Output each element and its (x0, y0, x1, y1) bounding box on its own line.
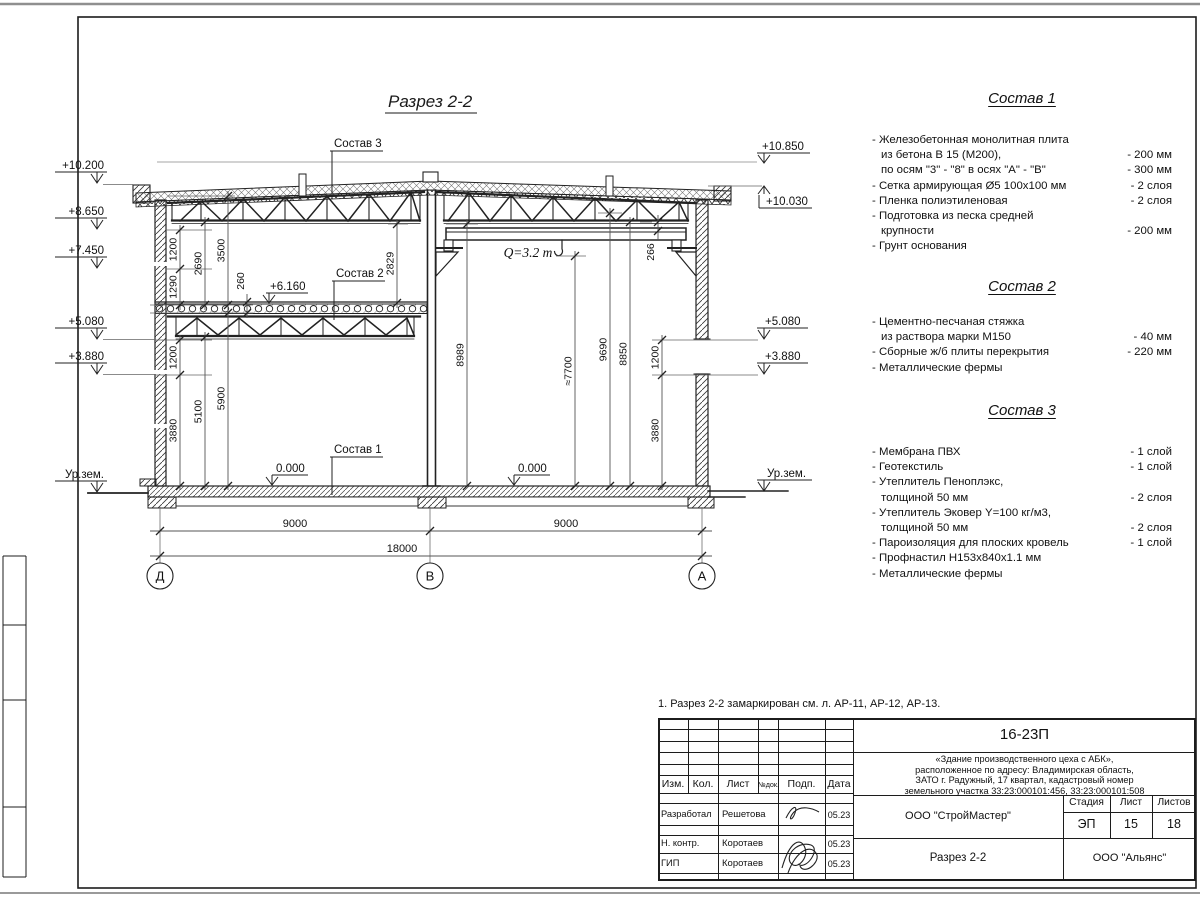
svg-text:0.000: 0.000 (276, 463, 305, 475)
svg-text:Ур.зем.: Ур.зем. (65, 469, 104, 481)
project-code: 16-23П (853, 726, 1196, 743)
spec2-title: Состав 2 (872, 278, 1172, 295)
spec-item-text: - Геотекстиль (872, 460, 943, 475)
spec-item-text: по осям "3" - "8" в осях "А" - "В" (872, 163, 1046, 178)
roof-vent-left (299, 174, 306, 196)
project-desc-line: «Здание производственного цеха с АБК», (855, 754, 1194, 764)
sheet-section-name: Разрез 2-2 (853, 852, 1063, 864)
spec-row: - Железобетонная монолитная плита (872, 133, 1172, 148)
ground-level-mark: Ур.зем. (55, 469, 107, 492)
spec-row: толщиной 50 мм- 2 слоя (872, 521, 1172, 536)
contractor-org: ООО "СтройМастер" (853, 810, 1063, 822)
svg-text:Состав 2: Состав 2 (336, 268, 384, 280)
spec-item-text: - Металлические фермы (872, 567, 1002, 582)
spec-item-text: - Цементно-песчаная стяжка (872, 315, 1024, 330)
roof-edge-left (133, 185, 150, 203)
spec-row: - Утеплитель Эковер Y=100 кг/м3, (872, 506, 1172, 521)
spec-item-text: - Утеплитель Эковер Y=100 кг/м3, (872, 506, 1051, 521)
roof-vent-right (606, 176, 613, 196)
spec-row: из бетона В 15 (М200),- 200 мм (872, 148, 1172, 163)
floor-structure (88, 479, 788, 508)
dim-18000: 18000 (387, 543, 418, 555)
project-desc-line: расположенное по адресу: Владимирская об… (855, 765, 1194, 775)
dim-3880-left: 3880 (168, 419, 180, 443)
dim-2829: 2829 (385, 252, 397, 276)
col-podp: Подп. (778, 778, 825, 790)
elevation-mark: +5.080 (757, 316, 808, 339)
spec-item-text: толщиной 50 мм (872, 491, 968, 506)
ground-line-right (708, 491, 788, 497)
spec-row: - Пароизоляция для плоских кровель- 1 сл… (872, 536, 1172, 551)
stage-header: Стадия (1063, 797, 1110, 808)
sheet-note: 1. Разрез 2-2 замаркирован см. л. АР-11,… (658, 698, 940, 710)
row-role: Н. контр. (661, 838, 717, 848)
spec-row: - Утеплитель Пеноплэкс, (872, 475, 1172, 490)
spec-item-value: - 2 слоя (1131, 491, 1172, 506)
spec-item-value: - 200 мм (1127, 224, 1172, 239)
elevation-mark: +5.080 (55, 316, 107, 339)
dim-2690: 2690 (193, 252, 205, 276)
spec-item-text: - Пароизоляция для плоских кровель (872, 536, 1069, 551)
spec-block-2: Состав 2 - Цементно-песчаная стяжка из р… (872, 278, 1172, 376)
spec-row: - Подготовка из песка средней (872, 209, 1172, 224)
spec-item-value: - 1 слой (1130, 536, 1172, 551)
dim-1290: 1290 (168, 275, 180, 299)
svg-text:+10.030: +10.030 (766, 196, 808, 208)
spec-row: - Металлические фермы (872, 567, 1172, 582)
crane-beam (436, 228, 696, 276)
spec-item-text: - Утеплитель Пеноплэкс, (872, 475, 1003, 490)
ground-level-mark: Ур.зем. (757, 468, 812, 491)
dim-5100: 5100 (193, 400, 205, 424)
spec-row: - Пленка полиэтиленовая- 2 слоя (872, 194, 1172, 209)
spec-item-text: - Пленка полиэтиленовая (872, 194, 1008, 209)
spec-item-text: - Грунт основания (872, 239, 967, 254)
spec-row: - Грунт основания (872, 239, 1172, 254)
dim-266: 266 (645, 243, 657, 261)
spec-item-text: - Сетка армирующая Ø5 100х100 мм (872, 179, 1066, 194)
row-name: Решетова (722, 809, 777, 820)
title-block: Изм. Кол. Лист №док. Подп. Дата Разработ… (658, 718, 1196, 881)
elevation-marks-right: +10.850 +10.030 +5.080 +3.880 Ур.зем. (757, 141, 812, 491)
axis-bubbles: Д В А (147, 563, 715, 589)
dim-8850: 8850 (618, 342, 630, 366)
spec-item-value: - 1 слой (1130, 445, 1172, 460)
level-zero-left: 0.000 (266, 463, 308, 485)
svg-text:+8.650: +8.650 (69, 206, 105, 218)
spec-row: - Сборные ж/б плиты перекрытия- 220 мм (872, 345, 1172, 360)
row-role: ГИП (661, 858, 717, 868)
svg-text:+6.160: +6.160 (270, 281, 306, 293)
elevation-mark: +3.880 (757, 351, 808, 374)
dim-3500: 3500 (216, 239, 228, 263)
svg-text:+7.450: +7.450 (69, 245, 105, 257)
spec-row: - Металлические фермы (872, 361, 1172, 376)
column-middle (423, 190, 440, 486)
spec-item-value: - 40 мм (1134, 330, 1172, 345)
spec-row: по осям "3" - "8" в осях "А" - "В"- 300 … (872, 163, 1172, 178)
stage-value: ЭП (1063, 817, 1110, 831)
spec-row: - Геотекстиль- 1 слой (872, 460, 1172, 475)
elevation-marks-left: +10.200 +8.650 +7.450 +5.080 +3.880 Ур.з… (55, 160, 107, 492)
spec-block-1: Состав 1 - Железобетонная монолитная пли… (872, 90, 1172, 255)
spec-item-text: из раствора марки М150 (872, 330, 1011, 345)
level-zero-right: 0.000 (508, 463, 550, 485)
drawing-sheet: 1200 1290 1200 3880 2690 5100 3500 5900 … (0, 0, 1200, 900)
col-ndok: №док. (758, 780, 778, 789)
svg-text:0.000: 0.000 (518, 463, 547, 475)
spec-item-value: - 2 слоя (1131, 194, 1172, 209)
elevation-mark: +3.880 (55, 351, 107, 374)
dim-260: 260 (235, 272, 247, 290)
spec-item-value: - 300 мм (1127, 163, 1172, 178)
crane-capacity-label: Q=3.2 т (504, 245, 553, 260)
spec-item-text: крупности (872, 224, 934, 239)
spec-item-value: - 2 слоя (1131, 179, 1172, 194)
client-org: ООО "Альянс" (1063, 852, 1196, 864)
svg-text:+3.880: +3.880 (765, 351, 801, 363)
wall-right-lower (696, 374, 708, 486)
col-list: Лист (718, 778, 758, 790)
spec1-title: Состав 1 (872, 90, 1172, 107)
roof-ridge-cap (423, 172, 438, 182)
level-6160: +6.160 (263, 281, 308, 303)
row-name: Коротаев (722, 838, 777, 849)
svg-text:+10.200: +10.200 (62, 160, 104, 172)
spec-row: - Сетка армирующая Ø5 100х100 мм- 2 слоя (872, 179, 1172, 194)
wall-left (155, 200, 166, 486)
row-date: 05.23 (825, 810, 853, 820)
wall-right-upper (696, 200, 708, 339)
crane-hook-icon (555, 240, 563, 256)
col-izm: Изм. (658, 778, 688, 790)
wall-right-window-lines (694, 339, 710, 374)
spec-item-text: из бетона В 15 (М200), (872, 148, 1001, 163)
svg-text:+3.880: +3.880 (69, 351, 105, 363)
row-role: Разработал (661, 809, 717, 819)
spec-row: толщиной 50 мм- 2 слоя (872, 491, 1172, 506)
elevation-mark: +8.650 (55, 206, 107, 229)
spec-row: из раствора марки М150- 40 мм (872, 330, 1172, 345)
axis-label-a: А (698, 569, 707, 584)
dim-9000-left: 9000 (283, 518, 307, 530)
project-desc-line: ЗАТО г. Радужный, 17 квартал, кадастровы… (855, 775, 1194, 785)
dimensions: 1200 1290 1200 3880 2690 5100 3500 5900 … (103, 162, 762, 589)
sheet-value: 15 (1110, 817, 1152, 831)
dim-3880-right: 3880 (650, 419, 662, 443)
drawing-title: Разрез 2-2 (388, 92, 472, 112)
elevation-mark: +10.030 (758, 186, 812, 208)
dim-7700: ≈7700 (563, 356, 575, 385)
sheets-value: 18 (1152, 817, 1196, 831)
spec-item-text: - Подготовка из песка средней (872, 209, 1034, 224)
svg-text:+5.080: +5.080 (765, 316, 801, 328)
svg-text:Состав 3: Состав 3 (334, 138, 382, 150)
dim-5900: 5900 (216, 387, 228, 411)
spec-item-value: - 220 мм (1127, 345, 1172, 360)
col-data: Дата (825, 778, 853, 790)
roof-edge-right (714, 186, 731, 201)
spec-item-text: - Железобетонная монолитная плита (872, 133, 1069, 148)
spec3-title: Состав 3 (872, 402, 1172, 419)
project-desc-line: земельного участка 33:23:000101:456, 33:… (855, 786, 1194, 796)
dim-9000-right: 9000 (554, 518, 578, 530)
svg-text:+5.080: +5.080 (69, 316, 105, 328)
elevation-mark: +7.450 (55, 245, 107, 268)
axis-label-d: Д (156, 569, 165, 584)
row-name: Коротаев (722, 858, 777, 869)
spec-item-value: - 2 слоя (1131, 521, 1172, 536)
svg-text:Состав 1: Состав 1 (334, 444, 382, 456)
dim-1200-mid: 1200 (168, 346, 180, 370)
row-date: 05.23 (825, 859, 853, 869)
spec-item-text: - Профнастил Н153х840х1.1 мм (872, 551, 1041, 566)
col-kol: Кол. (688, 778, 718, 790)
spec-item-text: толщиной 50 мм (872, 521, 968, 536)
spec-item-value: - 200 мм (1127, 148, 1172, 163)
spec-item-text: - Металлические фермы (872, 361, 1002, 376)
svg-text:+10.850: +10.850 (762, 141, 804, 153)
spec-row: - Цементно-песчаная стяжка (872, 315, 1172, 330)
spec-row: - Профнастил Н153х840х1.1 мм (872, 551, 1172, 566)
spec-item-text: - Сборные ж/б плиты перекрытия (872, 345, 1049, 360)
row-date: 05.23 (825, 839, 853, 849)
spec-row: - Мембрана ПВХ- 1 слой (872, 445, 1172, 460)
dim-1200-upper: 1200 (168, 238, 180, 262)
dim-8989: 8989 (455, 343, 467, 367)
spec-block-3: Состав 3 - Мембрана ПВХ- 1 слой - Геотек… (872, 402, 1172, 582)
spec-item-value: - 1 слой (1130, 460, 1172, 475)
dim-9690: 9690 (598, 338, 610, 362)
axis-label-v: В (426, 569, 435, 584)
svg-text:Ур.зем.: Ур.зем. (767, 468, 806, 480)
dim-1200-right: 1200 (650, 346, 662, 370)
elevation-mark: +10.850 (757, 141, 810, 163)
elevation-mark: +10.200 (55, 160, 107, 183)
sheet-header: Лист (1110, 797, 1152, 808)
mid-floor-slab (155, 302, 427, 314)
spec-row: крупности- 200 мм (872, 224, 1172, 239)
spec-item-text: - Мембрана ПВХ (872, 445, 960, 460)
sheets-header: Листов (1152, 797, 1196, 808)
